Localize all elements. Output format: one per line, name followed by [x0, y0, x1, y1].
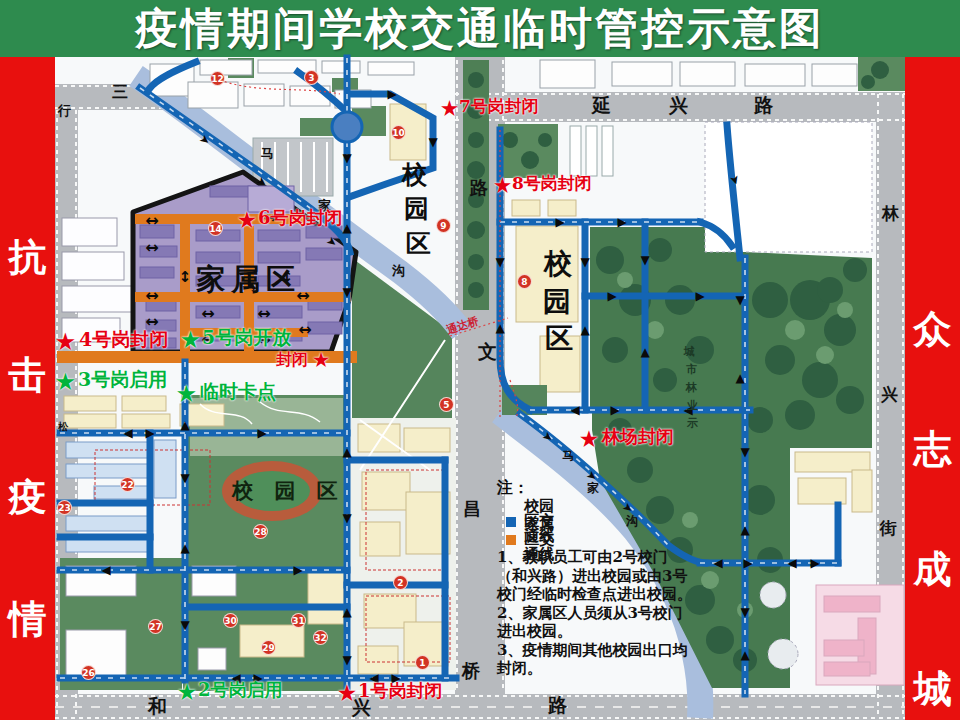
note-line: 2、家属区人员须从3号校门: [497, 604, 697, 623]
route-arrow-icon: ▼: [740, 446, 749, 458]
route-arrow-icon: ▲: [180, 542, 189, 554]
forest-area-label: 城: [684, 346, 695, 357]
right-slogan-banner: 众 志 成 城: [905, 57, 960, 720]
numbered-badge: 3: [305, 71, 318, 84]
notes: 1、教职员工可由2号校门 （和兴路）进出校园或由3号 校门经临时检查点进出校园。…: [497, 548, 697, 678]
stadium-zone-label: 校 园 区: [232, 480, 345, 501]
numbered-badge: 8: [518, 275, 531, 288]
star-icon: ★: [338, 683, 356, 703]
route-arrow-icon: ↕: [179, 270, 192, 285]
note-line: 进出校园。: [497, 622, 697, 641]
numbered-badge: 9: [437, 219, 450, 232]
route-arrow-icon: ▶: [810, 557, 819, 569]
route-arrow-icon: ↔: [257, 306, 270, 322]
route-arrow-icon: ▶: [607, 290, 616, 302]
slogan-char: 情: [9, 600, 47, 638]
numbered-badge: 22: [121, 478, 134, 491]
street-name: 兴: [881, 386, 898, 403]
slogan-char: 志: [914, 430, 952, 468]
route-arrow-icon: ▼: [342, 286, 351, 298]
street-name: 路: [548, 696, 567, 715]
street-name: 三: [112, 84, 128, 100]
route-arrow-icon: ▼: [640, 254, 649, 266]
route-arrow-icon: ▼: [342, 654, 351, 666]
gate4-label: 4号岗封闭: [79, 330, 168, 349]
street-name: 路: [470, 179, 488, 197]
family-route-swatch: [506, 535, 516, 545]
numbered-badge: 2: [394, 576, 407, 589]
street-name: 松: [58, 422, 68, 432]
route-arrow-icon: ▼: [342, 152, 351, 164]
river-name: 沟: [392, 264, 405, 277]
route-arrow-icon: ↔: [298, 322, 311, 338]
numbered-badge: 29: [262, 641, 275, 654]
street-name: 行: [58, 104, 71, 117]
route-arrow-icon: ▶: [387, 88, 396, 100]
star-icon: ★: [181, 329, 200, 350]
forest-closed-label: 林场封闭: [602, 428, 674, 446]
numbered-badge: 30: [224, 614, 237, 627]
route-arrow-icon: ▶: [617, 216, 626, 228]
gate3-label: 3号岗启用: [78, 370, 167, 389]
route-arrow-icon: ▼: [180, 619, 189, 631]
river-name: 家: [587, 482, 599, 494]
note-line: 封闭。: [497, 659, 697, 678]
route-arrow-icon: ↔: [201, 306, 214, 322]
note-line: 1、教职员工可由2号校门: [497, 548, 697, 567]
route-arrow-icon: ▼: [580, 256, 589, 268]
campus-zone-label: 园: [404, 196, 429, 221]
numbered-badge: 23: [58, 501, 71, 514]
route-arrow-icon: ▼: [740, 606, 749, 618]
route-arrow-icon: ▲: [640, 346, 649, 358]
note-line: 3、疫情期间其他校园出口均: [497, 641, 697, 660]
numbered-badge: 27: [149, 620, 162, 633]
slogan-char: 击: [9, 356, 47, 394]
route-arrow-icon: ◀: [570, 404, 579, 416]
slogan-char: 疫: [9, 478, 47, 516]
gate5-label: 5号岗开放: [202, 328, 291, 347]
street-name: 文: [478, 342, 497, 361]
street-name: 昌: [463, 500, 481, 518]
route-arrow-icon: ▲: [735, 372, 744, 384]
closed-label: 封闭: [276, 352, 308, 368]
route-arrow-icon: ▼: [428, 136, 437, 148]
route-arrow-icon: ▼: [735, 294, 744, 306]
route-arrow-icon: ↔: [145, 288, 158, 304]
star-icon: ★: [580, 429, 598, 449]
route-arrow-icon: ▶: [743, 557, 752, 569]
route-arrow-icon: ▲: [740, 524, 749, 536]
numbered-badge: 32: [314, 631, 327, 644]
campus-zone-label: 校: [544, 250, 572, 278]
family-zone-label: 家属区: [196, 265, 301, 294]
route-arrow-icon: ▼: [180, 472, 189, 484]
campus-zone-label: 园: [543, 288, 571, 316]
route-arrow-icon: ▲: [495, 322, 504, 334]
slogan-char: 众: [914, 310, 952, 348]
route-arrow-icon: ▼: [495, 256, 504, 268]
numbered-badge: 10: [392, 126, 405, 139]
forest-area-label: 林: [686, 382, 697, 393]
route-arrow-icon: ◀: [123, 427, 132, 439]
route-arrow-icon: ▶: [293, 564, 302, 576]
street-name: 兴: [669, 96, 688, 115]
route-arrow-icon: ◀: [713, 557, 722, 569]
numbered-badge: 31: [292, 614, 305, 627]
roundabout: [332, 112, 362, 142]
route-arrow-icon: ◀: [101, 564, 110, 576]
star-icon: ★: [177, 383, 196, 404]
route-arrow-icon: ▼: [342, 512, 351, 524]
numbered-badge: 1: [416, 656, 429, 669]
numbered-badge: 14: [209, 222, 222, 235]
star-icon: ★: [313, 351, 329, 369]
star-icon: ★: [56, 371, 75, 392]
route-arrow-icon: ▲: [580, 324, 589, 336]
street-name: 延: [592, 96, 611, 115]
campus-map: ★ 7号岗封闭 ★ 8号岗封闭 ★ 6号岗封闭 ★ 4号岗封闭 ★ 5号岗开放 …: [0, 0, 960, 720]
route-arrow-icon: ▶: [145, 427, 154, 439]
gate8-label: 8号岗封闭: [512, 175, 592, 192]
route-arrow-icon: ▲: [740, 649, 749, 661]
gate2-label: 2号岗启用: [198, 681, 283, 699]
forest-area-label: 示: [687, 418, 698, 429]
street-name: 街: [880, 520, 897, 537]
street-name: 和: [148, 697, 167, 716]
star-icon: ★: [238, 210, 256, 230]
street-name: 路: [754, 96, 773, 115]
forest-area-label: 市: [686, 364, 697, 375]
river-name: 马: [261, 147, 274, 160]
numbered-badge: 26: [82, 666, 95, 679]
star-icon: ★: [441, 99, 458, 118]
route-arrow-icon: ◀: [787, 557, 796, 569]
left-slogan-banner: 抗 击 疫 情: [0, 57, 55, 720]
route-arrow-icon: ▶: [695, 290, 704, 302]
star-icon: ★: [56, 331, 75, 352]
river-name: 沟: [626, 515, 638, 527]
star-icon: ★: [178, 682, 196, 702]
route-arrow-icon: ▶: [610, 404, 619, 416]
campus-zone-label: 区: [406, 231, 431, 256]
slogan-char: 成: [914, 550, 952, 588]
legend-heading: 注：: [497, 480, 529, 496]
numbered-badge: 5: [440, 398, 453, 411]
poster: 疫情期间学校交通临时管控示意图 抗 击 疫 情 众 志 成 城: [0, 0, 960, 720]
street-name: 桥: [462, 662, 480, 680]
campus-zone-label: 校: [402, 162, 427, 187]
star-icon: ★: [494, 176, 511, 195]
gate6-label: 6号岗封闭: [258, 209, 343, 227]
note-line: （和兴路）进出校园或由3号: [497, 567, 697, 586]
route-arrow-icon: ▲: [342, 222, 351, 234]
river-name: 马: [562, 450, 574, 462]
route-arrow-icon: ▲: [180, 419, 189, 431]
route-arrow-icon: ▶: [555, 216, 564, 228]
campus-zone-label: 区: [545, 325, 573, 353]
slogan-char: 城: [914, 670, 952, 708]
forest-area-label: 业: [687, 400, 698, 411]
numbered-badge: 28: [254, 525, 267, 538]
route-arrow-icon: ▲: [342, 606, 351, 618]
slogan-char: 抗: [9, 238, 47, 276]
route-arrow-icon: ▶: [257, 427, 266, 439]
route-arrow-icon: ↔: [145, 213, 158, 229]
route-arrow-icon: ↔: [145, 240, 158, 256]
route-arrow-icon: ▲: [342, 446, 351, 458]
gate7-label: 7号岗封闭: [459, 98, 539, 115]
street-name: 林: [882, 205, 899, 222]
checkpoint-label: 临时卡点: [200, 382, 276, 401]
note-line: 校门经临时检查点进出校园。: [497, 585, 697, 604]
gate1-label: 1号岗封闭: [358, 682, 443, 700]
numbered-badge: 12: [211, 72, 224, 85]
